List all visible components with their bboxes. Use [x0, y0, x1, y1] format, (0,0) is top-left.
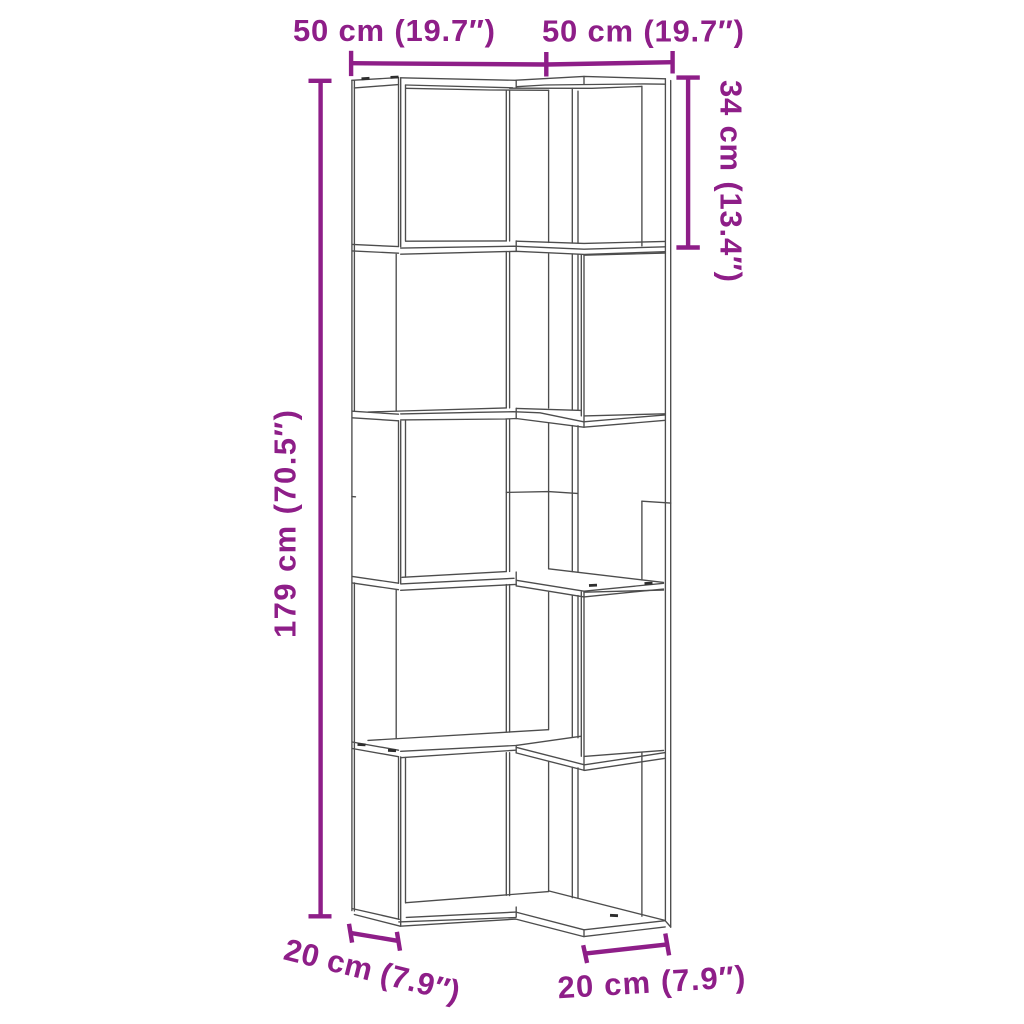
- svg-text:179 cm (70.5″): 179 cm (70.5″): [268, 410, 303, 638]
- svg-text:50 cm (19.7″): 50 cm (19.7″): [293, 13, 495, 48]
- svg-text:50 cm (19.7″): 50 cm (19.7″): [542, 14, 744, 49]
- svg-text:34 cm (13.4″): 34 cm (13.4″): [714, 80, 749, 282]
